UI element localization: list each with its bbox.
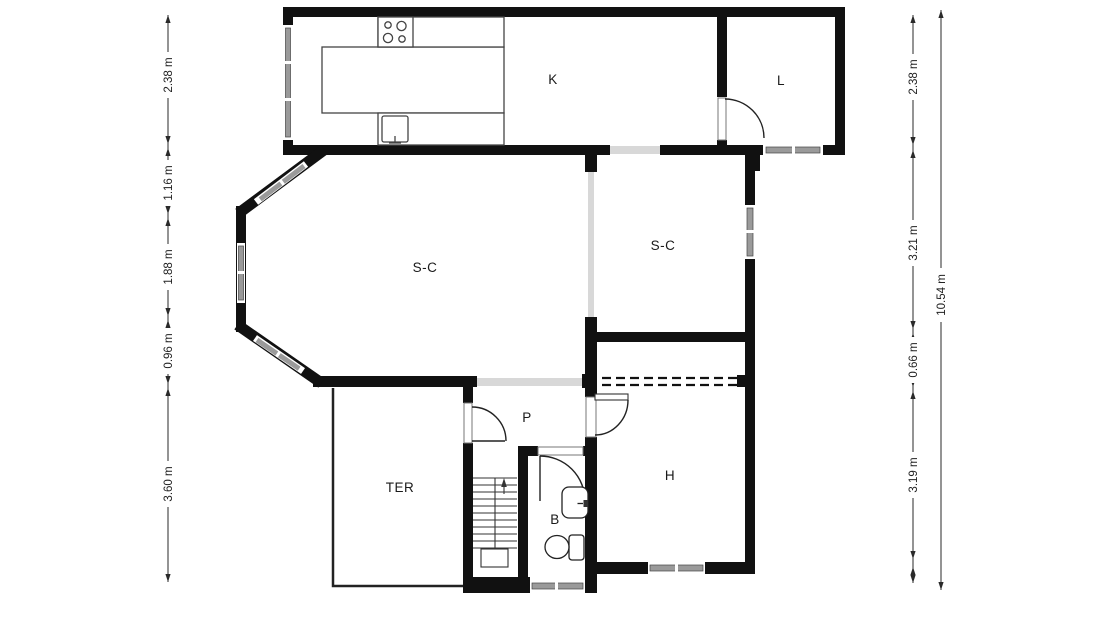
dimension-arrows (165, 10, 943, 590)
dashed-beam (602, 378, 737, 385)
toilet-tank (569, 535, 584, 560)
toilet-bowl (545, 536, 569, 559)
door-arc-h (595, 400, 628, 435)
dim-right-3: 0.66 m (908, 342, 920, 377)
dim-total: 10.54 m (936, 274, 948, 316)
dimension-label-backgrounds (161, 52, 948, 507)
room-label-ter: TER (386, 480, 415, 495)
stove (378, 17, 413, 47)
dim-right-4: 3.19 m (908, 457, 920, 492)
door-swings (472, 99, 764, 501)
room-label-p: P (522, 410, 532, 425)
room-label-sc-left: S-C (413, 260, 438, 275)
door-leaf-h (595, 394, 628, 400)
dim-right-1: 2.38 m (908, 59, 920, 94)
floorplan-drawing: K L S-C S-C P TER B H (0, 0, 1110, 626)
door-arc-l (725, 99, 764, 138)
dim-left-5: 3.60 m (163, 466, 175, 501)
dim-left-2: 1.16 m (163, 165, 175, 200)
dimension-labels: 2.38 m 1.16 m 1.88 m 0.96 m 3.60 m 2.38 … (163, 57, 948, 501)
stairs (473, 478, 517, 567)
dim-right-2: 3.21 m (908, 225, 920, 260)
door-arc-ter (472, 407, 506, 441)
wall-openings (477, 146, 660, 386)
floorplan-page: K L S-C S-C P TER B H (0, 0, 1110, 626)
dim-left-1: 2.38 m (163, 57, 175, 92)
room-label-h: H (665, 468, 675, 483)
room-label-k: K (548, 72, 558, 87)
room-label-sc-right: S-C (651, 238, 676, 253)
room-label-b: B (550, 512, 560, 527)
kitchen-counter (322, 17, 504, 145)
sink-tap (584, 500, 589, 507)
room-label-l: L (777, 73, 785, 88)
dim-left-3: 1.88 m (163, 249, 175, 284)
dim-left-4: 0.96 m (163, 333, 175, 368)
